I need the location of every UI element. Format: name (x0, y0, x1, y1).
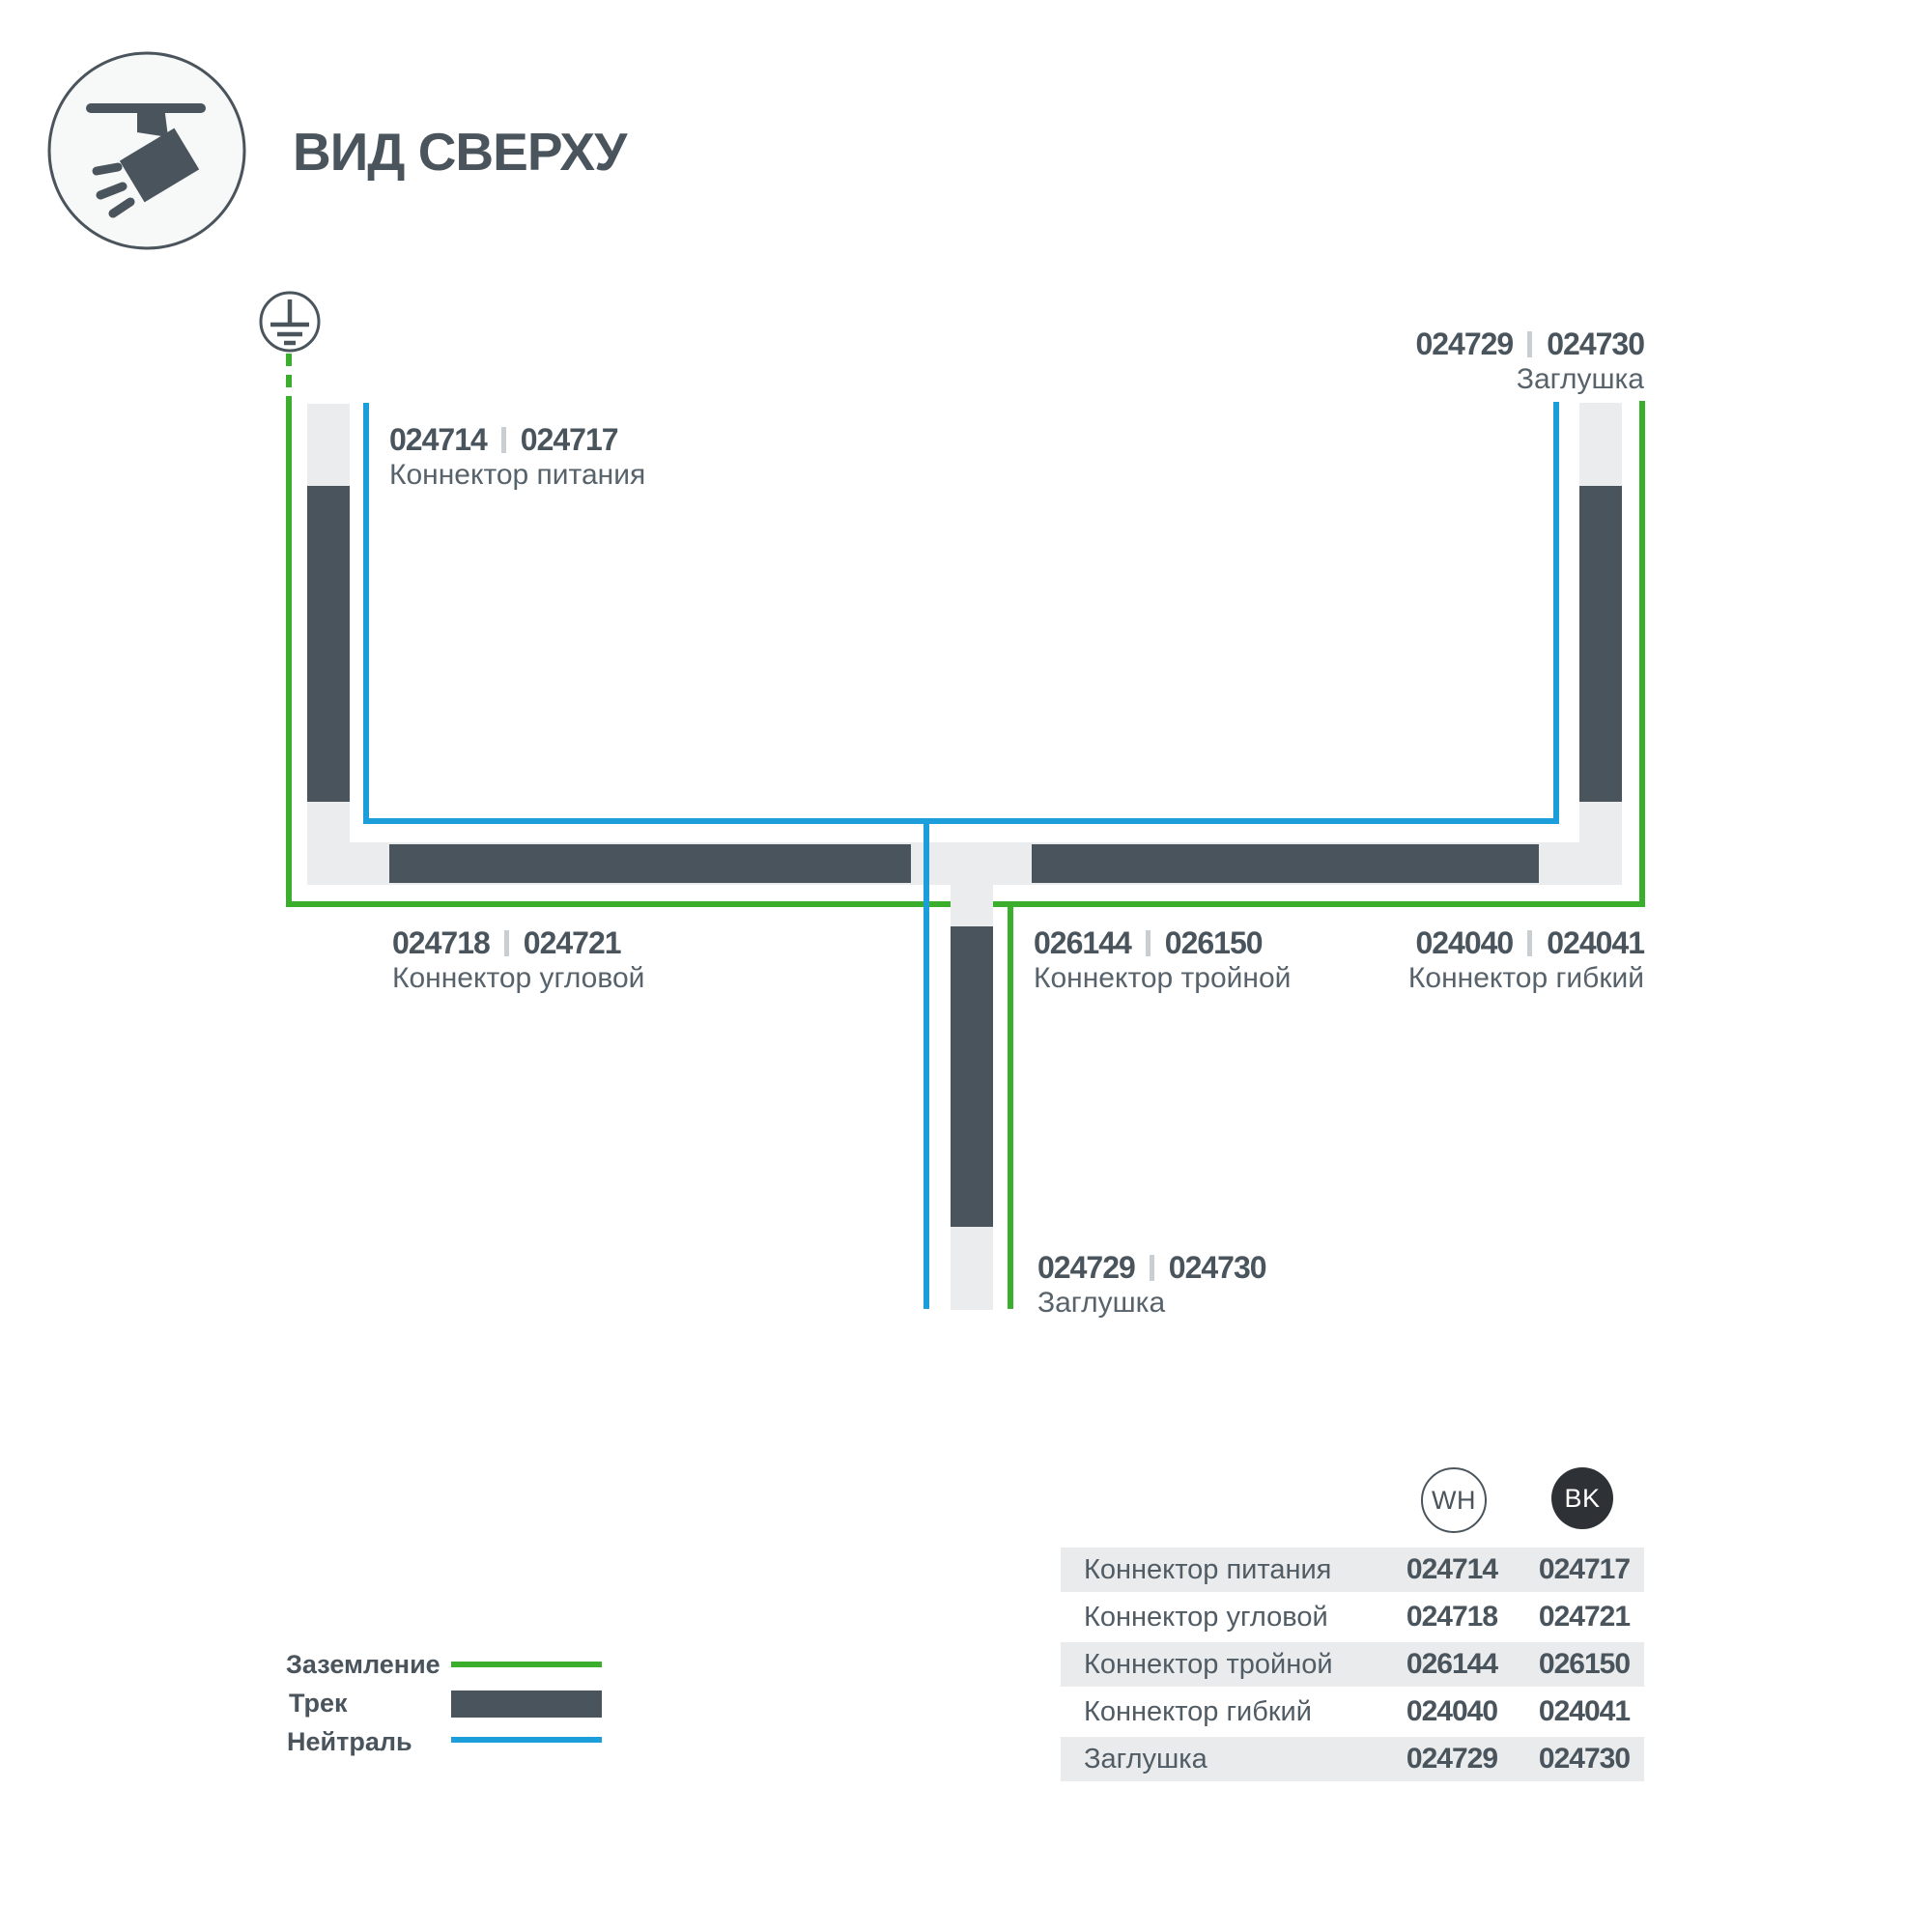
label-codes: 024718 024721 (392, 924, 644, 961)
row-label: Коннектор тройной (1084, 1642, 1333, 1687)
earth-ground-icon (258, 290, 322, 354)
label-triple-connector: 026144 026150 Коннектор тройной (1034, 924, 1291, 996)
table-row: Заглушка 024729 024730 (1061, 1737, 1644, 1781)
track-core-right (1579, 486, 1622, 802)
code-divider (501, 427, 506, 453)
code-bk: 026150 (1165, 925, 1263, 961)
code-divider (1527, 930, 1532, 956)
label-codes: 024714 024717 (389, 421, 645, 458)
track-spotlight-icon (44, 48, 249, 253)
neutral-wire-horizontal (363, 818, 1559, 824)
code-divider (504, 930, 509, 956)
row-label: Коннектор угловой (1084, 1595, 1328, 1639)
cell-bk: 024717 (1539, 1548, 1630, 1592)
page-title: ВИД СВЕРХУ (293, 124, 626, 180)
connector-name: Заглушка (1037, 1286, 1266, 1321)
legend-label-track: Трек (289, 1690, 348, 1717)
top-view-infographic: ВИД СВЕРХУ (0, 0, 1932, 1932)
legend-swatch-track-bar (451, 1690, 602, 1718)
legend-swatch-neutral-line (451, 1737, 602, 1743)
label-flex-connector: 024040 024041 Коннектор гибкий (1408, 924, 1644, 996)
cell-wh: 024718 (1406, 1595, 1497, 1639)
color-badge-wh: WH (1421, 1467, 1487, 1533)
track-core-horizontal-left (389, 844, 911, 883)
code-divider (1150, 1255, 1154, 1281)
label-codes: 026144 026150 (1034, 924, 1291, 961)
track-core-bottom (951, 926, 993, 1227)
cell-bk: 024721 (1539, 1595, 1630, 1639)
label-power-connector: 024714 024717 Коннектор питания (389, 421, 645, 493)
table-row: Коннектор гибкий 024040 024041 (1061, 1690, 1644, 1734)
code-bk: 024730 (1547, 327, 1644, 362)
color-badge-bk: BK (1551, 1467, 1613, 1529)
legend-swatch-ground-line (451, 1662, 602, 1667)
code-bk: 024041 (1547, 925, 1644, 961)
row-label: Коннектор питания (1084, 1548, 1331, 1592)
neutral-wire-middle (923, 818, 929, 1309)
code-divider (1527, 331, 1532, 357)
code-bk: 024721 (524, 925, 621, 961)
code-bk: 024730 (1169, 1250, 1266, 1286)
code-wh: 026144 (1034, 925, 1131, 961)
label-endcap-top: 024729 024730 Заглушка (1415, 326, 1644, 397)
code-bk: 024717 (521, 422, 618, 458)
connector-name: Коннектор тройной (1034, 961, 1291, 996)
row-label: Заглушка (1084, 1737, 1207, 1781)
connector-name: Заглушка (1415, 362, 1644, 397)
cell-wh: 026144 (1406, 1642, 1497, 1687)
neutral-wire-left (363, 403, 369, 824)
code-wh: 024714 (389, 422, 487, 458)
cell-wh: 024714 (1406, 1548, 1497, 1592)
track-core-horizontal-right (1032, 844, 1539, 883)
row-label: Коннектор гибкий (1084, 1690, 1312, 1734)
table-row: Коннектор угловой 024718 024721 (1061, 1595, 1644, 1639)
cell-wh: 024040 (1406, 1690, 1497, 1734)
cell-wh: 024729 (1406, 1737, 1497, 1781)
ground-wire-branch (1008, 907, 1013, 1309)
connector-name: Коннектор угловой (392, 961, 644, 996)
code-wh: 024729 (1037, 1250, 1135, 1286)
cell-bk: 026150 (1539, 1642, 1630, 1687)
legend-label-neutral: Нейтраль (287, 1728, 412, 1755)
label-codes: 024729 024730 (1037, 1249, 1266, 1286)
ground-wire-right (1639, 401, 1645, 907)
ground-wire-dashed (286, 354, 292, 400)
code-divider (1146, 930, 1151, 956)
label-endcap-bottom: 024729 024730 Заглушка (1037, 1249, 1266, 1321)
code-wh: 024040 (1415, 925, 1513, 961)
track-core-left (307, 486, 350, 802)
cell-bk: 024041 (1539, 1690, 1630, 1734)
connector-name: Коннектор питания (389, 458, 645, 493)
table-row: Коннектор питания 024714 024717 (1061, 1548, 1644, 1592)
table-row: Коннектор тройной 026144 026150 (1061, 1642, 1644, 1687)
code-wh: 024729 (1415, 327, 1513, 362)
label-codes: 024729 024730 (1415, 326, 1644, 362)
code-wh: 024718 (392, 925, 490, 961)
ground-wire-left (286, 400, 292, 907)
connector-name: Коннектор гибкий (1408, 961, 1644, 996)
label-corner-connector: 024718 024721 Коннектор угловой (392, 924, 644, 996)
label-codes: 024040 024041 (1408, 924, 1644, 961)
neutral-wire-right (1553, 402, 1559, 824)
legend-label-ground: Заземление (286, 1651, 440, 1678)
cell-bk: 024730 (1539, 1737, 1630, 1781)
